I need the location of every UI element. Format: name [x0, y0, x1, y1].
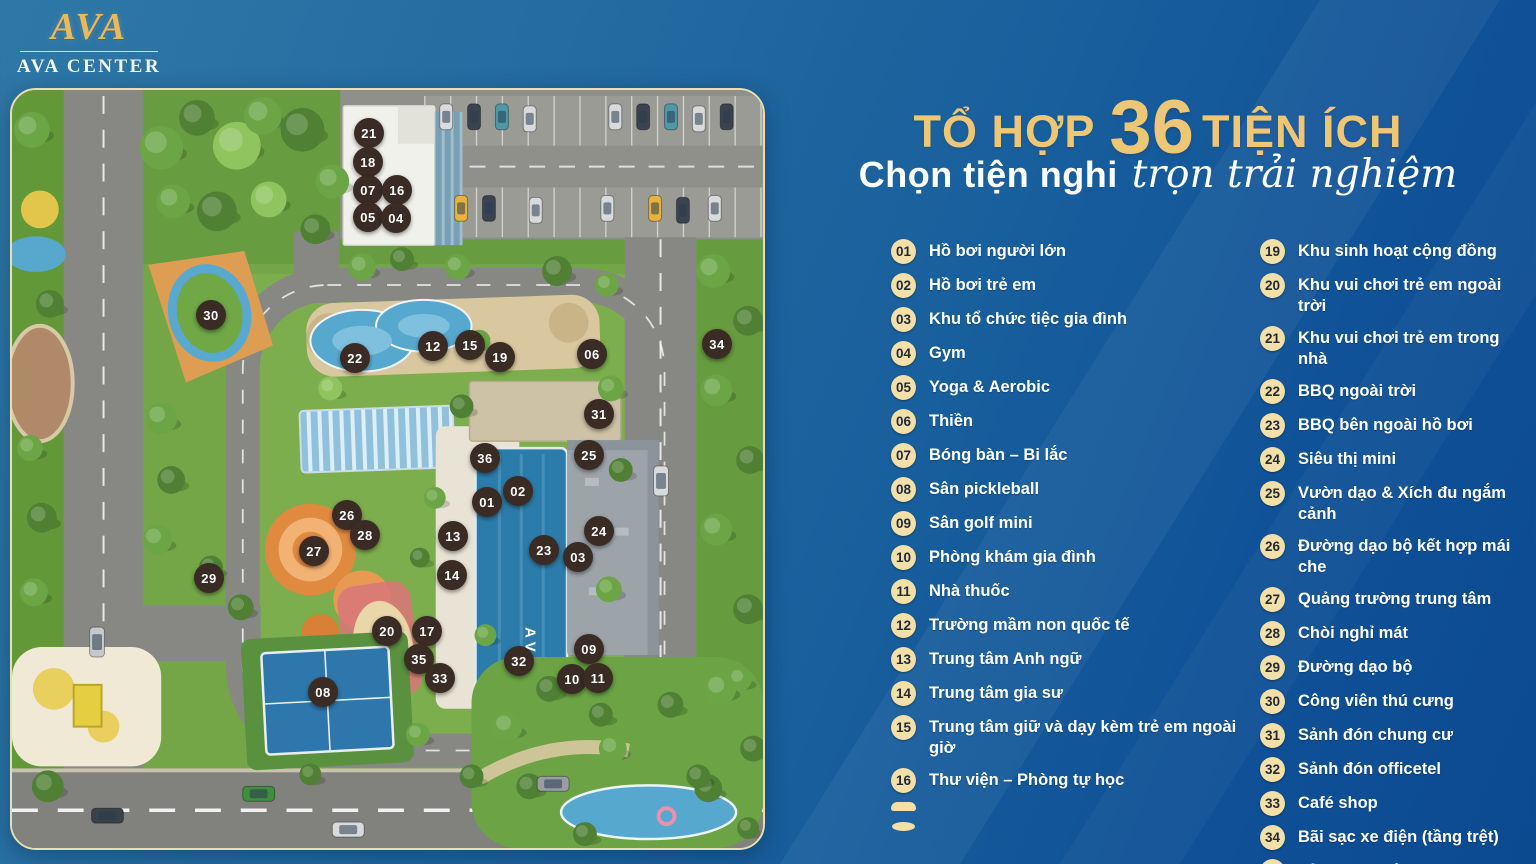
amenity-number-badge: 24 [1260, 447, 1285, 472]
amenity-label: Sân pickleball [929, 477, 1039, 500]
amenity-list: 01 Hồ bơi người lớn 02 Hồ bơi trẻ em 03 … [891, 239, 1531, 864]
amenity-label: Thiền [929, 409, 973, 432]
amenity-number-badge: 30 [1260, 689, 1285, 714]
site-map: AVA [10, 88, 765, 850]
list-item: 29 Đường dạo bộ [1260, 655, 1531, 680]
map-marker: 15 [455, 330, 485, 360]
amenity-label: Khu vui chơi trẻ em ngoài trời [1298, 273, 1531, 317]
amenity-number-badge: 25 [1260, 481, 1285, 506]
list-item: 27 Quảng trường trung tâm [1260, 587, 1531, 612]
list-item: 06 Thiền [891, 409, 1260, 434]
amenity-label: Sảnh đón chung cư [1298, 723, 1453, 746]
map-marker: 19 [485, 342, 515, 372]
amenity-number-badge: 34 [1260, 825, 1285, 850]
site-plan-art: AVA [12, 90, 763, 848]
amenity-label: Vườn dạo & Xích đu ngắm cảnh [1298, 481, 1531, 525]
map-marker: 06 [577, 339, 607, 369]
amenity-partial-badge [891, 802, 916, 827]
amenity-number-badge: 16 [891, 768, 916, 793]
list-item: 31 Sảnh đón chung cư [1260, 723, 1531, 748]
amenity-label: Khu vui chơi trẻ em trong nhà [1298, 326, 1531, 370]
map-marker: 27 [299, 536, 329, 566]
map-marker: 21 [354, 118, 384, 148]
list-item: 13 Trung tâm Anh ngữ [891, 647, 1260, 672]
map-marker: 16 [382, 175, 412, 205]
amenity-label: Trung tâm Anh ngữ [929, 647, 1082, 670]
amenity-label: Bãi sạc xe điện (tầng trệt) [1298, 825, 1499, 848]
amenity-label: Trung tâm giữ và dạy kèm trẻ em ngoài gi… [929, 715, 1239, 759]
amenity-column-left: 01 Hồ bơi người lớn 02 Hồ bơi trẻ em 03 … [891, 239, 1260, 864]
list-item: 35 Tủ locker thông minh [1260, 859, 1531, 864]
amenity-number-badge: 09 [891, 511, 916, 536]
amenity-number-badge: 19 [1260, 239, 1285, 264]
map-marker: 08 [308, 677, 338, 707]
map-marker: 05 [353, 202, 383, 232]
logo-monogram: AVA [14, 8, 164, 48]
amenity-number-badge: 27 [1260, 587, 1285, 612]
map-marker: 17 [412, 616, 442, 646]
list-item: 19 Khu sinh hoạt cộng đồng [1260, 239, 1531, 264]
amenity-label: Đường dạo bộ [1298, 655, 1412, 678]
list-item: 21 Khu vui chơi trẻ em trong nhà [1260, 326, 1531, 370]
amenity-number-badge: 01 [891, 239, 916, 264]
map-marker: 18 [353, 147, 383, 177]
amenity-number-badge: 07 [891, 443, 916, 468]
amenity-label: Hồ bơi trẻ em [929, 273, 1036, 296]
amenity-number-badge: 21 [1260, 326, 1285, 351]
amenity-number-badge: 15 [891, 715, 916, 740]
map-marker: 22 [340, 343, 370, 373]
amenity-label: BBQ ngoài trời [1298, 379, 1416, 402]
map-marker: 24 [584, 516, 614, 546]
amenity-number-badge: 33 [1260, 791, 1285, 816]
list-item: 12 Trường mầm non quốc tế [891, 613, 1260, 638]
list-item: 28 Chòi nghỉ mát [1260, 621, 1531, 646]
title-suffix: TIỆN ÍCH [1202, 106, 1403, 157]
list-item: 30 Công viên thú cưng [1260, 689, 1531, 714]
amenity-label: Yoga & Aerobic [929, 375, 1050, 398]
amenity-number-badge: 23 [1260, 413, 1285, 438]
amenity-number-badge: 04 [891, 341, 916, 366]
list-item: 24 Siêu thị mini [1260, 447, 1531, 472]
list-item: 10 Phòng khám gia đình [891, 545, 1260, 570]
amenity-number-badge: 22 [1260, 379, 1285, 404]
amenity-label: Sân golf mini [929, 511, 1033, 534]
amenity-label: Đường dạo bộ kết hợp mái che [1298, 534, 1531, 578]
map-marker: 28 [350, 520, 380, 550]
map-marker: 20 [372, 616, 402, 646]
list-item: 01 Hồ bơi người lớn [891, 239, 1260, 264]
map-marker: 09 [574, 634, 604, 664]
map-marker: 29 [194, 563, 224, 593]
amenity-label: Công viên thú cưng [1298, 689, 1454, 712]
list-item: 15 Trung tâm giữ và dạy kèm trẻ em ngoài… [891, 715, 1260, 759]
amenity-label: Thư viện – Phòng tự học [929, 768, 1124, 791]
list-item: 08 Sân pickleball [891, 477, 1260, 502]
amenity-label: Café shop [1298, 791, 1378, 814]
list-item: 23 BBQ bên ngoài hồ bơi [1260, 413, 1531, 438]
list-item: 20 Khu vui chơi trẻ em ngoài trời [1260, 273, 1531, 317]
amenity-label: Trung tâm gia sư [929, 681, 1063, 704]
map-marker: 23 [529, 535, 559, 565]
list-item: 05 Yoga & Aerobic [891, 375, 1260, 400]
map-marker: 11 [583, 663, 613, 693]
list-item: 32 Sảnh đón officetel [1260, 757, 1531, 782]
map-marker: 01 [472, 487, 502, 517]
logo-divider [20, 51, 158, 52]
list-item: 22 BBQ ngoài trời [1260, 379, 1531, 404]
amenity-number-badge: 31 [1260, 723, 1285, 748]
list-item: 07 Bóng bàn – Bi lắc [891, 443, 1260, 468]
list-item-truncated [891, 802, 1260, 827]
list-item: 26 Đường dạo bộ kết hợp mái che [1260, 534, 1531, 578]
amenity-label: Chòi nghỉ mát [1298, 621, 1408, 644]
map-marker: 32 [504, 646, 534, 676]
amenity-number-badge: 26 [1260, 534, 1285, 559]
amenity-label: Khu sinh hoạt cộng đồng [1298, 239, 1497, 262]
amenity-label: Gym [929, 341, 966, 364]
map-marker: 34 [702, 329, 732, 359]
title-prefix: TỔ HỢP [914, 106, 1096, 157]
amenity-number-badge: 08 [891, 477, 916, 502]
amenity-label: Bóng bàn – Bi lắc [929, 443, 1067, 466]
map-marker: 30 [196, 300, 226, 330]
amenity-number-badge: 12 [891, 613, 916, 638]
amenity-label: Trường mầm non quốc tế [929, 613, 1130, 636]
amenity-number-badge: 11 [891, 579, 916, 604]
pavilion-roof [299, 406, 454, 473]
amenity-number-badge: 28 [1260, 621, 1285, 646]
map-marker: 25 [574, 440, 604, 470]
amenity-number-badge: 06 [891, 409, 916, 434]
list-item: 25 Vườn dạo & Xích đu ngắm cảnh [1260, 481, 1531, 525]
amenity-number-badge: 35 [1260, 859, 1285, 864]
map-marker: 02 [503, 476, 533, 506]
amenity-label: Hồ bơi người lớn [929, 239, 1066, 262]
amenity-label: Phòng khám gia đình [929, 545, 1096, 568]
list-item: 14 Trung tâm gia sư [891, 681, 1260, 706]
list-item: 16 Thư viện – Phòng tự học [891, 768, 1260, 793]
amenity-column-right: 19 Khu sinh hoạt cộng đồng 20 Khu vui ch… [1260, 239, 1531, 864]
map-marker: 04 [381, 203, 411, 233]
list-item: 04 Gym [891, 341, 1260, 366]
map-marker: 36 [470, 443, 500, 473]
amenity-label: Siêu thị mini [1298, 447, 1396, 470]
list-item: 34 Bãi sạc xe điện (tầng trệt) [1260, 825, 1531, 850]
map-marker: 33 [425, 663, 455, 693]
amenity-label: Quảng trường trung tâm [1298, 587, 1491, 610]
amenity-label: BBQ bên ngoài hồ bơi [1298, 413, 1473, 436]
amenity-number-badge: 03 [891, 307, 916, 332]
list-item: 02 Hồ bơi trẻ em [891, 273, 1260, 298]
logo-name: AVA CENTER [14, 56, 164, 78]
amenity-label: Sảnh đón officetel [1298, 757, 1441, 780]
amenity-number-badge: 14 [891, 681, 916, 706]
amenity-label: Nhà thuốc [929, 579, 1010, 602]
map-marker: 03 [563, 542, 593, 572]
map-marker: 31 [584, 399, 614, 429]
amenity-number-badge: 13 [891, 647, 916, 672]
subtitle-script: trọn trải nghiệm [1132, 152, 1457, 197]
amenity-number-badge: 29 [1260, 655, 1285, 680]
map-marker: 14 [437, 560, 467, 590]
amenity-label: Khu tổ chức tiệc gia đình [929, 307, 1127, 330]
page-subtitle: Chọn tiện nghitrọn trải nghiệm [790, 152, 1526, 197]
map-marker: 07 [353, 175, 383, 205]
brand-logo: AVA AVA CENTER [14, 8, 164, 78]
amenity-number-badge: 05 [891, 375, 916, 400]
amenity-number-badge: 32 [1260, 757, 1285, 782]
list-item: 09 Sân golf mini [891, 511, 1260, 536]
amenity-number-badge: 20 [1260, 273, 1285, 298]
amenity-label: Tủ locker thông minh [1298, 859, 1466, 864]
map-marker: 13 [438, 521, 468, 551]
subtitle-bold: Chọn tiện nghi [859, 154, 1118, 195]
map-marker: 12 [418, 331, 448, 361]
list-item: 11 Nhà thuốc [891, 579, 1260, 604]
list-item: 03 Khu tổ chức tiệc gia đình [891, 307, 1260, 332]
list-item: 33 Café shop [1260, 791, 1531, 816]
amenity-number-badge: 02 [891, 273, 916, 298]
amenity-number-badge: 10 [891, 545, 916, 570]
